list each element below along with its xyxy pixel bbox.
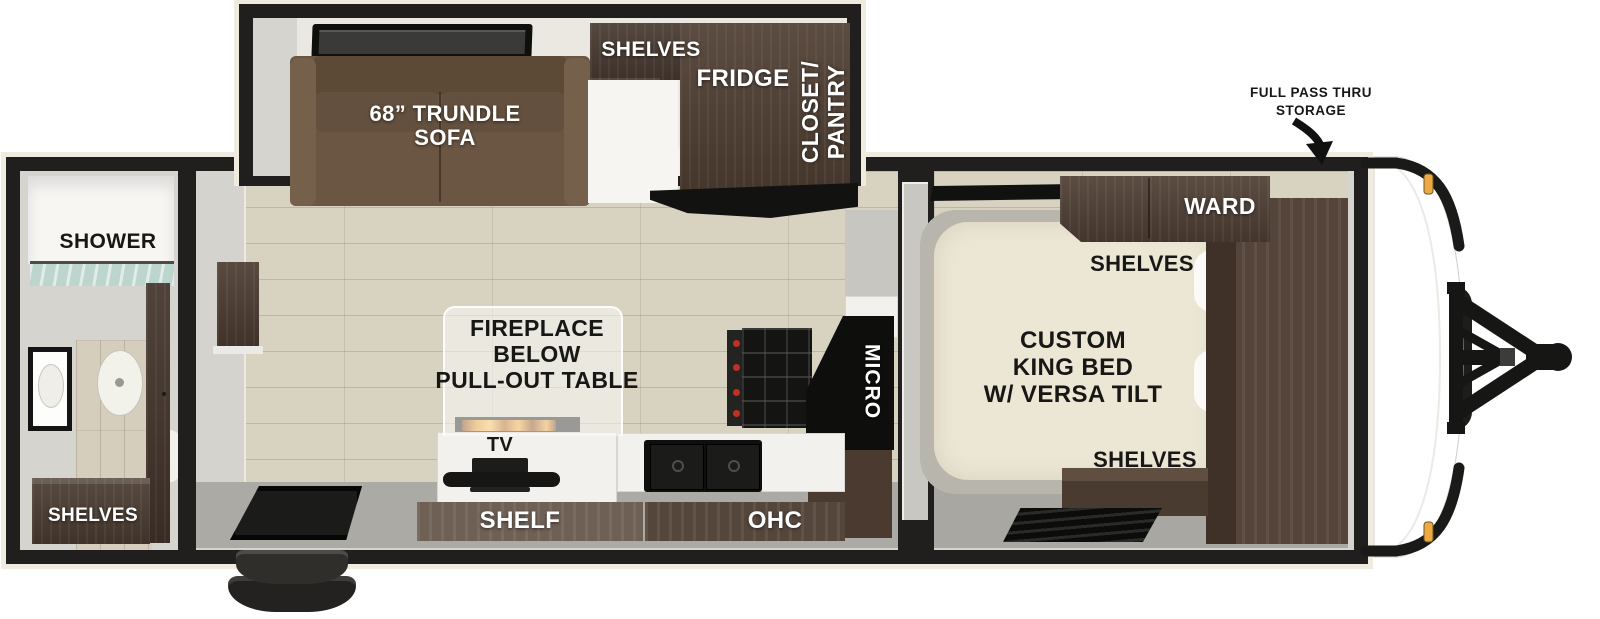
hitch-tab-top (1447, 282, 1465, 294)
marker-light-bottom (1424, 522, 1433, 542)
pass-thru-arrow-head (1306, 141, 1333, 165)
rv-floorplan-2d: SHOWER SHELVES 68” TRUNDLE SOFA SHELVES (0, 0, 1600, 619)
hitch-tab-bottom (1447, 422, 1465, 434)
pass-thru-storage-label: FULL PASS THRU STORAGE (1231, 84, 1391, 120)
hitch-coupler-ball (1544, 343, 1572, 371)
marker-light-top (1424, 174, 1433, 194)
hitch-center-detail (1500, 348, 1515, 366)
